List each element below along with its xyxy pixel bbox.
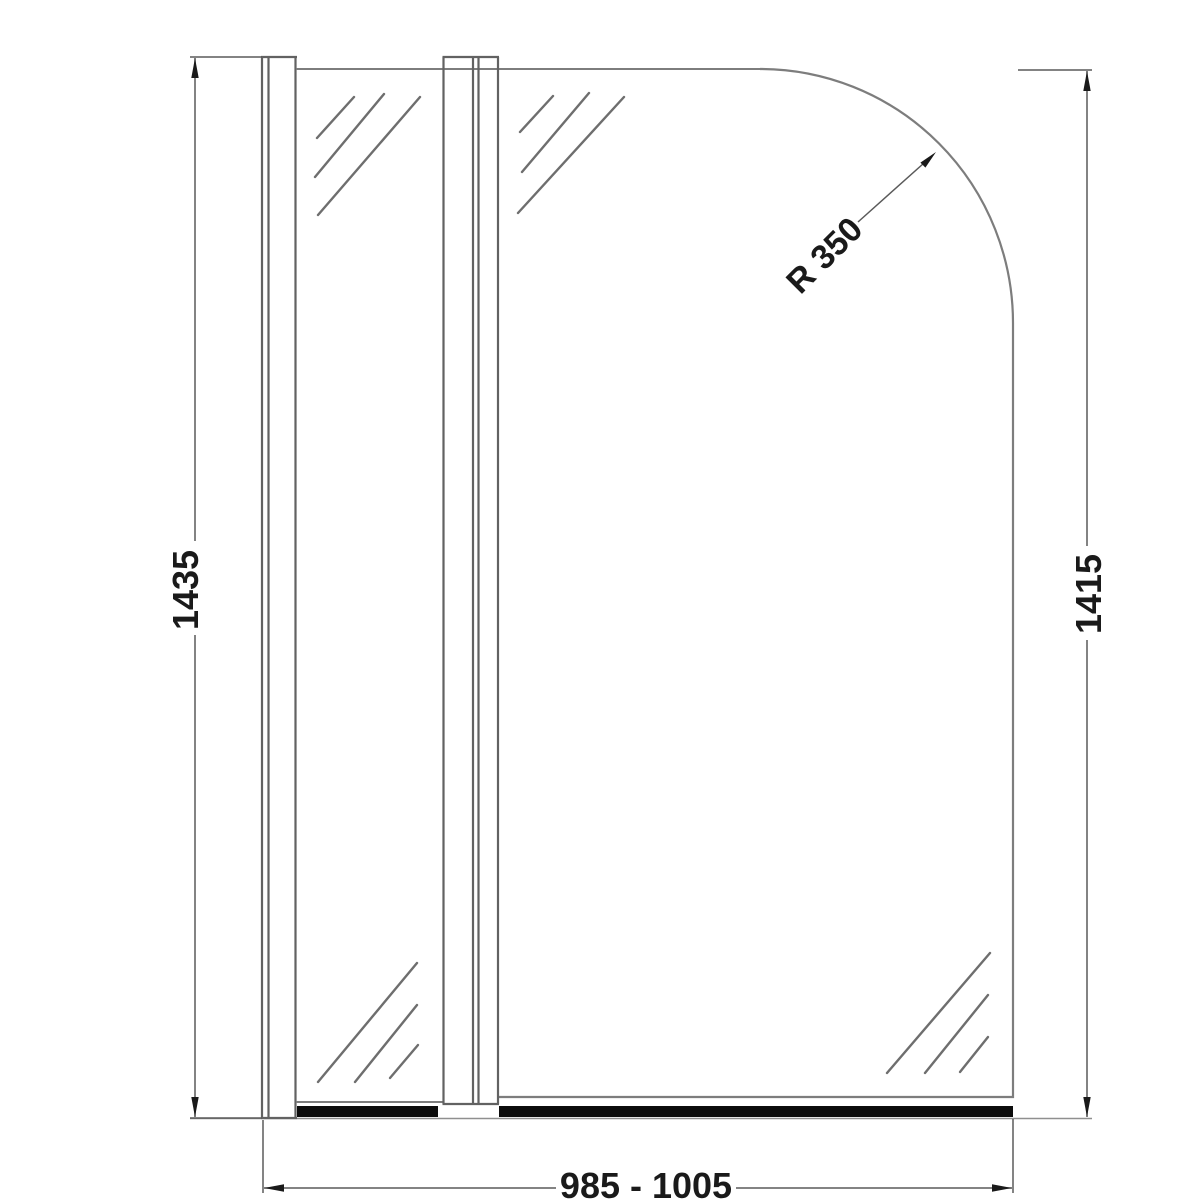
height-right-label: 1415	[1068, 554, 1109, 634]
bottom-seals	[297, 1106, 1013, 1117]
shower-screen-diagram: 1435 1415 985 - 1005 R 350	[0, 0, 1200, 1200]
height-right-label-group: 1415	[1068, 554, 1109, 634]
height-left-label-group: 1435	[165, 550, 206, 630]
fixed-panel-bottom-seal	[297, 1106, 438, 1117]
door-panel-bottom-seal	[499, 1106, 1013, 1117]
technical-drawing-canvas: 1435 1415 985 - 1005 R 350	[0, 0, 1200, 1200]
height-left-label: 1435	[165, 550, 206, 630]
width-range-label: 985 - 1005	[560, 1165, 732, 1200]
